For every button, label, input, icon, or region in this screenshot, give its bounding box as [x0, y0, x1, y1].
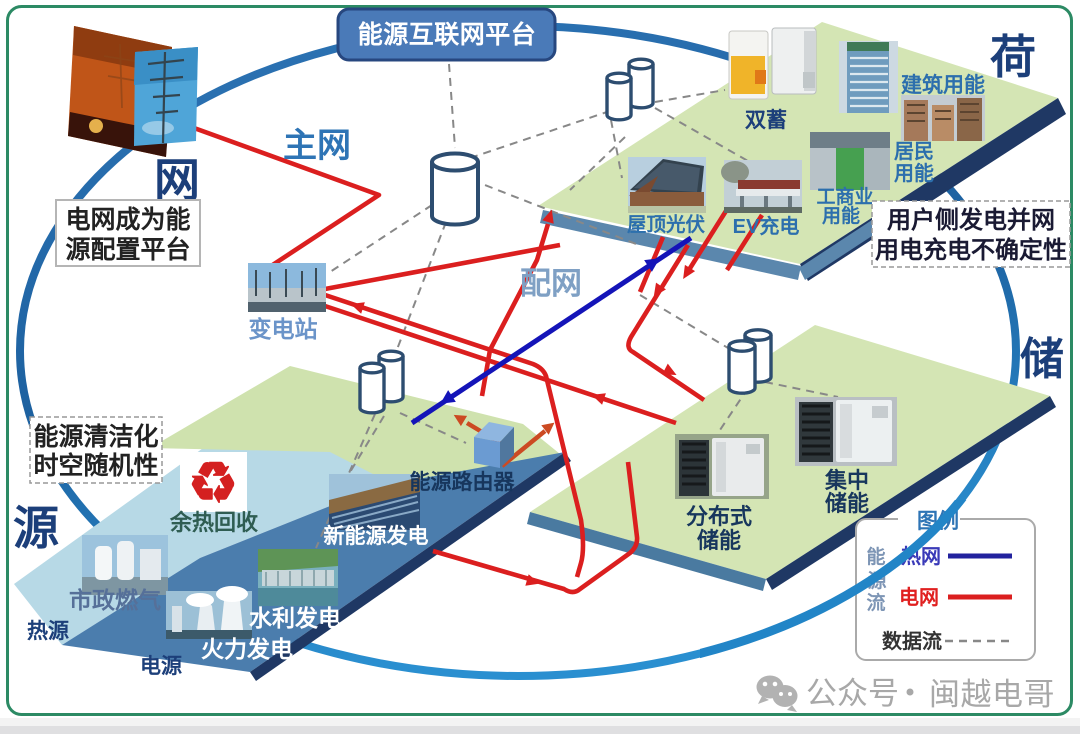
svg-text:流: 流: [866, 591, 885, 614]
svg-text:荷: 荷: [990, 31, 1036, 83]
svg-text:屋顶光伏: 屋顶光伏: [627, 213, 706, 236]
svg-text:储: 储: [1020, 335, 1064, 384]
svg-text:热源: 热源: [27, 619, 69, 643]
svg-text:公众号: 公众号: [806, 676, 899, 711]
svg-text:数据流: 数据流: [882, 629, 942, 653]
svg-text:集中: 集中: [824, 468, 869, 493]
svg-text:变电站: 变电站: [249, 316, 318, 342]
svg-text:配网: 配网: [520, 266, 582, 301]
svg-text:用能: 用能: [822, 204, 860, 227]
svg-text:电源: 电源: [140, 655, 182, 678]
svg-text:电网: 电网: [899, 586, 939, 609]
svg-text:用能: 用能: [894, 161, 934, 185]
svg-text:能源互联网平台: 能源互联网平台: [358, 20, 537, 49]
svg-text:闽越电哥: 闽越电哥: [929, 677, 1055, 712]
svg-text:火力发电: 火力发电: [201, 636, 293, 662]
svg-text:源: 源: [13, 502, 59, 554]
svg-text:用电充电不确定性: 用电充电不确定性: [875, 236, 1067, 264]
svg-text:电网成为能: 电网成为能: [65, 205, 190, 234]
svg-text:分布式: 分布式: [686, 504, 752, 529]
svg-text:主网: 主网: [283, 127, 351, 165]
svg-text:能源路由器: 能源路由器: [410, 470, 516, 494]
svg-text:新能源发电: 新能源发电: [324, 524, 429, 548]
svg-text:能源清洁化: 能源清洁化: [33, 422, 158, 451]
svg-text:工商业: 工商业: [816, 185, 873, 208]
svg-text:建筑用能: 建筑用能: [901, 73, 985, 97]
svg-text:能: 能: [866, 545, 885, 568]
svg-text:时空随机性: 时空随机性: [33, 451, 158, 480]
svg-text:网: 网: [154, 154, 200, 206]
svg-text:源配置平台: 源配置平台: [65, 235, 190, 264]
svg-text:♻: ♻: [188, 451, 238, 514]
svg-text:水利发电: 水利发电: [249, 605, 341, 631]
svg-text:余热回收: 余热回收: [169, 510, 258, 535]
svg-text:EV充电: EV充电: [733, 214, 800, 238]
svg-text:双蓄: 双蓄: [745, 109, 787, 132]
svg-text:居民: 居民: [894, 141, 934, 163]
svg-text:用户侧发电并网: 用户侧发电并网: [887, 206, 1055, 234]
svg-text:市政燃气: 市政燃气: [69, 587, 161, 613]
svg-text:储能: 储能: [825, 491, 869, 516]
svg-text:储能: 储能: [697, 528, 741, 553]
